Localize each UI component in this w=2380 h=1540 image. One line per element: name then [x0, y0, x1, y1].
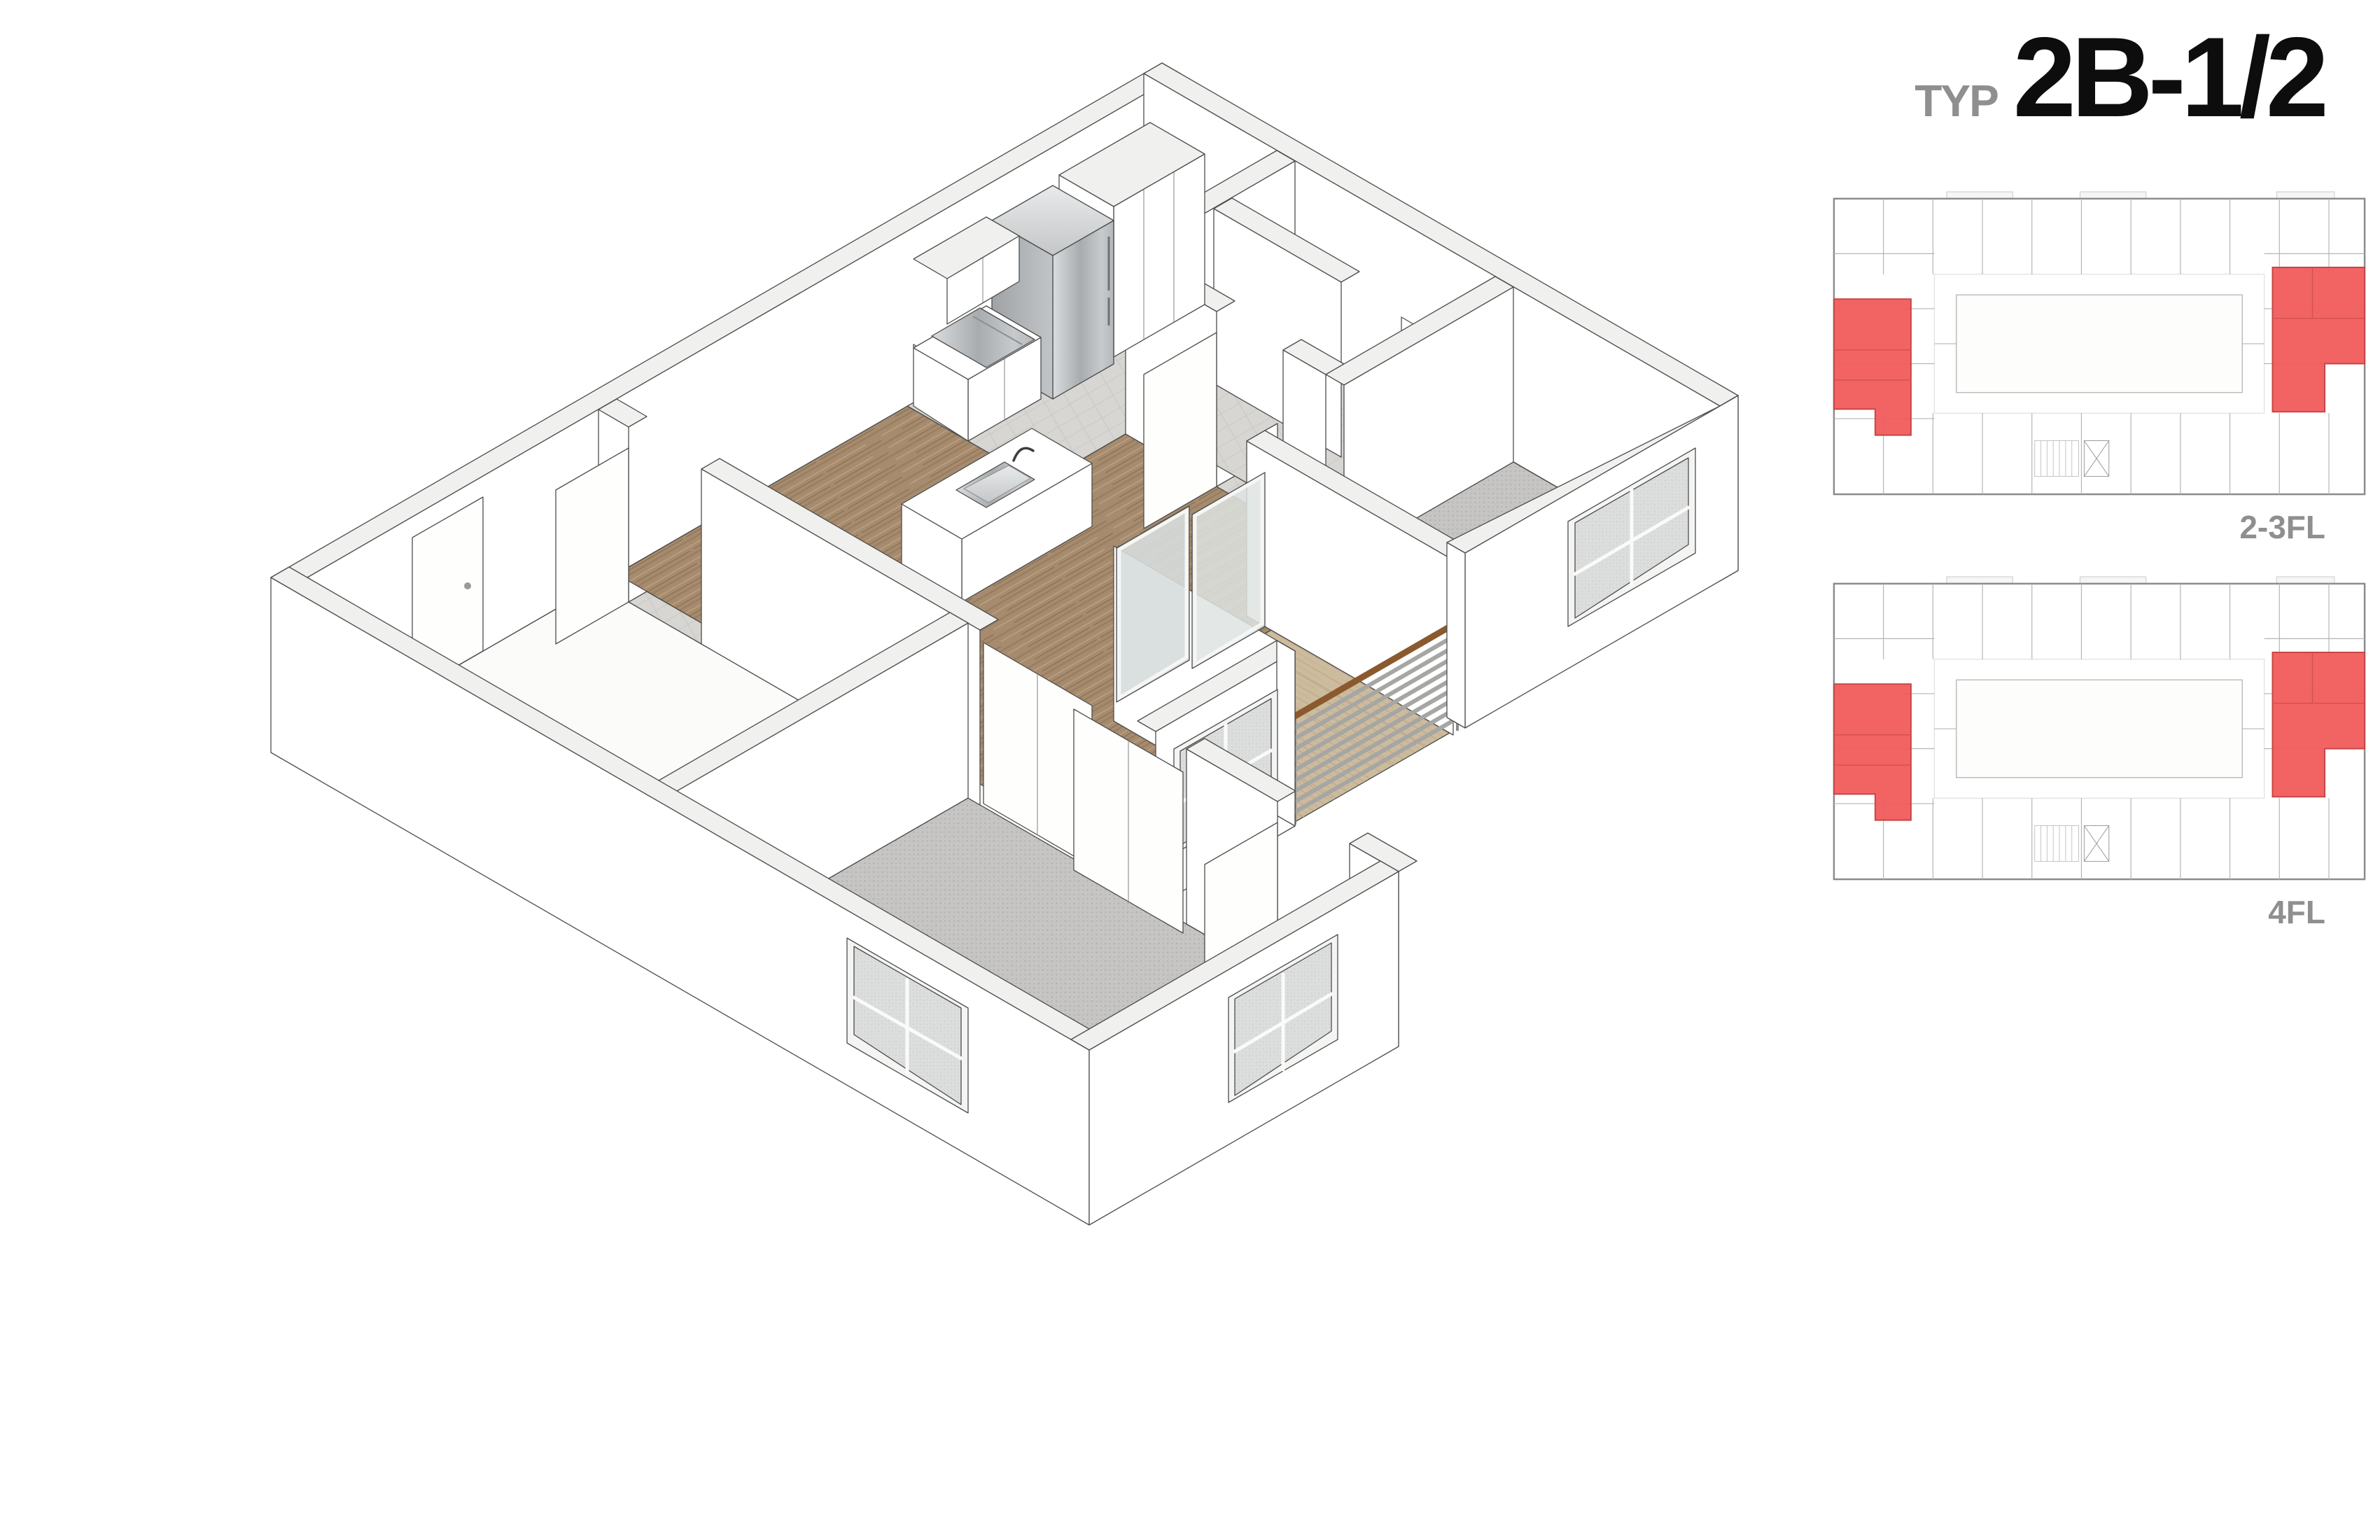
keyplan-label-4fl: 4FL — [1831, 893, 2325, 931]
unit-title: TYP 2B-1/2 — [1914, 27, 2324, 129]
entry-door-handle — [464, 582, 471, 589]
keyplan-label-2-3fl: 2-3FL — [1831, 508, 2325, 546]
unit-plan-sheet: TYP 2B-1/2 — [0, 0, 2380, 1540]
unit-title-name: 2B-1/2 — [2013, 27, 2324, 129]
keyplan-4fl — [1831, 575, 2367, 885]
keyplan-2-3fl — [1831, 190, 2367, 500]
unit-title-prefix: TYP — [1914, 75, 1997, 127]
